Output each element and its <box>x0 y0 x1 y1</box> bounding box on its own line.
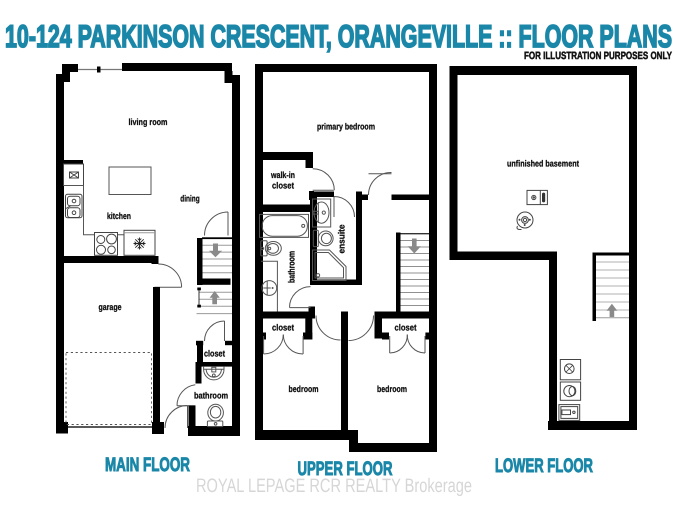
svg-text:FOR ILLUSTRATION PURPOSES ONLY: FOR ILLUSTRATION PURPOSES ONLY <box>524 50 672 62</box>
svg-text:bedroom: bedroom <box>377 384 407 394</box>
svg-text:living room: living room <box>129 117 168 127</box>
svg-text:bathroom: bathroom <box>287 251 297 283</box>
svg-text:walk-in: walk-in <box>270 170 295 180</box>
svg-text:ensuite: ensuite <box>337 225 347 254</box>
svg-text:primary bedroom: primary bedroom <box>317 122 375 132</box>
svg-text:closet: closet <box>204 349 225 359</box>
svg-text:closet: closet <box>272 323 294 333</box>
svg-text:kitchen: kitchen <box>107 211 131 221</box>
svg-text:10-124 PARKINSON CRESCENT, ORA: 10-124 PARKINSON CRESCENT, ORANGEVILLE :… <box>5 18 672 54</box>
svg-text:unfinished basement: unfinished basement <box>507 159 579 169</box>
svg-text:closet: closet <box>395 323 417 333</box>
svg-text:garage: garage <box>99 302 122 312</box>
svg-text:ROYAL LEPAGE RCR REALTY Broker: ROYAL LEPAGE RCR REALTY Brokerage <box>196 475 472 497</box>
svg-text:dining: dining <box>180 194 200 204</box>
svg-text:MAIN FLOOR: MAIN FLOOR <box>105 454 190 476</box>
svg-text:closet: closet <box>272 181 294 191</box>
svg-text:LOWER FLOOR: LOWER FLOOR <box>495 455 593 477</box>
svg-text:bathroom: bathroom <box>194 391 228 401</box>
svg-text:bedroom: bedroom <box>289 384 319 394</box>
